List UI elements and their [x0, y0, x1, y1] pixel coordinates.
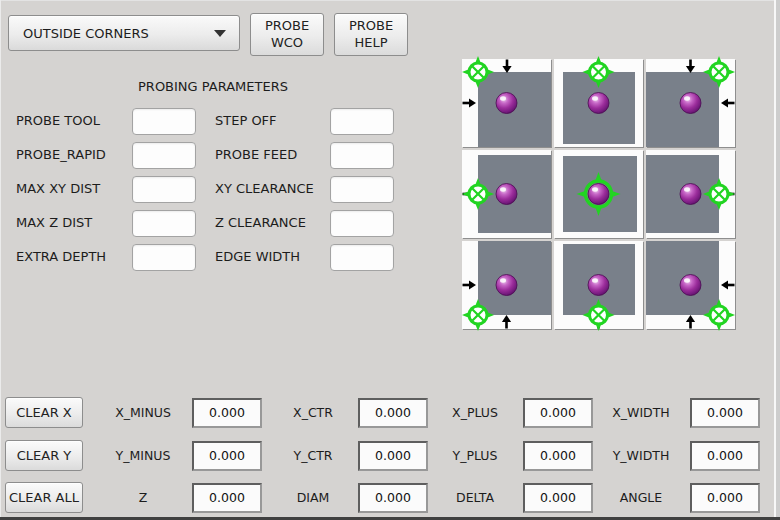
max-xy-dist-label: MAX XY DIST	[16, 172, 130, 206]
x-minus-value: 0.000	[192, 398, 262, 428]
probe-tile-bottom	[554, 241, 643, 329]
edge-width-input[interactable]	[330, 244, 394, 271]
step-off-input[interactable]	[330, 108, 394, 135]
probe-help-button[interactable]: PROBE HELP	[334, 13, 408, 56]
probe-feed-input[interactable]	[330, 142, 394, 169]
y-minus-value: 0.000	[192, 441, 262, 471]
probe-tile-graphic	[646, 241, 735, 329]
z-label: Z	[93, 483, 193, 513]
window-edge-right	[776, 0, 780, 517]
probe-screen-window: OUTSIDE CORNERS PROBE WCO PROBE HELP PRO…	[0, 0, 780, 520]
diam-label: DIAM	[263, 483, 363, 513]
chevron-down-icon	[214, 30, 226, 37]
probe-tile-graphic	[554, 241, 643, 329]
y-minus-label: Y_MINUS	[93, 441, 193, 471]
probe-tool-input[interactable]	[132, 108, 196, 135]
x-ctr-label: X_CTR	[263, 398, 363, 428]
probe-tile-left	[462, 150, 551, 238]
probe-tile-right	[646, 150, 735, 238]
probe-tile-bottom-right	[646, 241, 735, 329]
probe-ball-icon	[680, 275, 701, 296]
probe-ball-icon	[588, 275, 609, 296]
angle-label: ANGLE	[591, 483, 691, 513]
max-xy-dist-input[interactable]	[132, 176, 196, 203]
y-ctr-value: 0.000	[358, 441, 428, 471]
xy-clearance-label: XY CLEARANCE	[215, 172, 329, 206]
x-width-label: X_WIDTH	[591, 398, 691, 428]
delta-value: 0.000	[523, 483, 593, 513]
probe-feed-label: PROBE FEED	[215, 138, 329, 172]
probe-ball-icon	[680, 184, 701, 205]
probing-parameters-title: PROBING PARAMETERS	[16, 79, 410, 94]
x-ctr-value: 0.000	[358, 398, 428, 428]
clear-x-button[interactable]: CLEAR X	[5, 397, 83, 428]
step-off-label: STEP OFF	[215, 104, 329, 138]
probe-tile-graphic	[462, 150, 551, 238]
y-plus-label: Y_PLUS	[425, 441, 525, 471]
angle-value: 0.000	[690, 483, 760, 513]
x-width-value: 0.000	[690, 398, 760, 428]
probe-tile-graphic	[646, 150, 735, 238]
probe-ball-icon	[496, 184, 517, 205]
y-plus-value: 0.000	[523, 441, 593, 471]
probe-ball-icon	[496, 93, 517, 114]
probe-ball-icon	[588, 93, 609, 114]
x-plus-value: 0.000	[523, 398, 593, 428]
probe-mode-value: OUTSIDE CORNERS	[9, 26, 214, 41]
probe-tile-top-right	[646, 59, 735, 147]
x-plus-label: X_PLUS	[425, 398, 525, 428]
extra-depth-input[interactable]	[132, 244, 196, 271]
x-minus-label: X_MINUS	[93, 398, 193, 428]
max-z-dist-input[interactable]	[132, 210, 196, 237]
clear-all-button[interactable]: CLEAR ALL	[5, 482, 83, 513]
probe-tile-top-left	[462, 59, 551, 147]
probe-mode-select[interactable]: OUTSIDE CORNERS	[8, 15, 240, 51]
probe-tool-label: PROBE TOOL	[16, 104, 130, 138]
probe-tile-center	[554, 150, 643, 238]
probe-tile-graphic	[646, 59, 735, 147]
z-clearance-label: Z CLEARANCE	[215, 206, 329, 240]
probe-position-diagram	[462, 59, 735, 329]
window-edge-left	[0, 0, 1, 517]
probe-ball-icon	[496, 275, 517, 296]
probe-rapid-label: PROBE_RAPID	[16, 138, 130, 172]
probe-help-label-line1: PROBE	[349, 18, 393, 35]
probe-rapid-input[interactable]	[132, 142, 196, 169]
edge-width-label: EDGE WIDTH	[215, 240, 329, 274]
probe-help-label-line2: HELP	[354, 35, 387, 52]
probe-wco-label-line1: PROBE	[265, 18, 309, 35]
probe-tile-graphic	[462, 59, 551, 147]
probe-tile-graphic	[554, 150, 643, 238]
xy-clearance-input[interactable]	[330, 176, 394, 203]
delta-label: DELTA	[425, 483, 525, 513]
z-clearance-input[interactable]	[330, 210, 394, 237]
probe-wco-label-line2: WCO	[271, 35, 303, 52]
clear-y-button[interactable]: CLEAR Y	[5, 440, 83, 471]
diam-value: 0.000	[358, 483, 428, 513]
max-z-dist-label: MAX Z DIST	[16, 206, 130, 240]
probe-wco-button[interactable]: PROBE WCO	[250, 13, 324, 56]
probe-tile-graphic	[554, 59, 643, 147]
probe-tile-graphic	[462, 241, 551, 329]
y-ctr-label: Y_CTR	[263, 441, 363, 471]
probe-ball-icon	[588, 184, 609, 205]
probe-tile-top	[554, 59, 643, 147]
z-value: 0.000	[192, 483, 262, 513]
y-width-value: 0.000	[690, 441, 760, 471]
probe-ball-icon	[680, 93, 701, 114]
probe-tile-bottom-left	[462, 241, 551, 329]
y-width-label: Y_WIDTH	[591, 441, 691, 471]
window-edge-top	[0, 0, 780, 1]
extra-depth-label: EXTRA DEPTH	[16, 240, 130, 274]
